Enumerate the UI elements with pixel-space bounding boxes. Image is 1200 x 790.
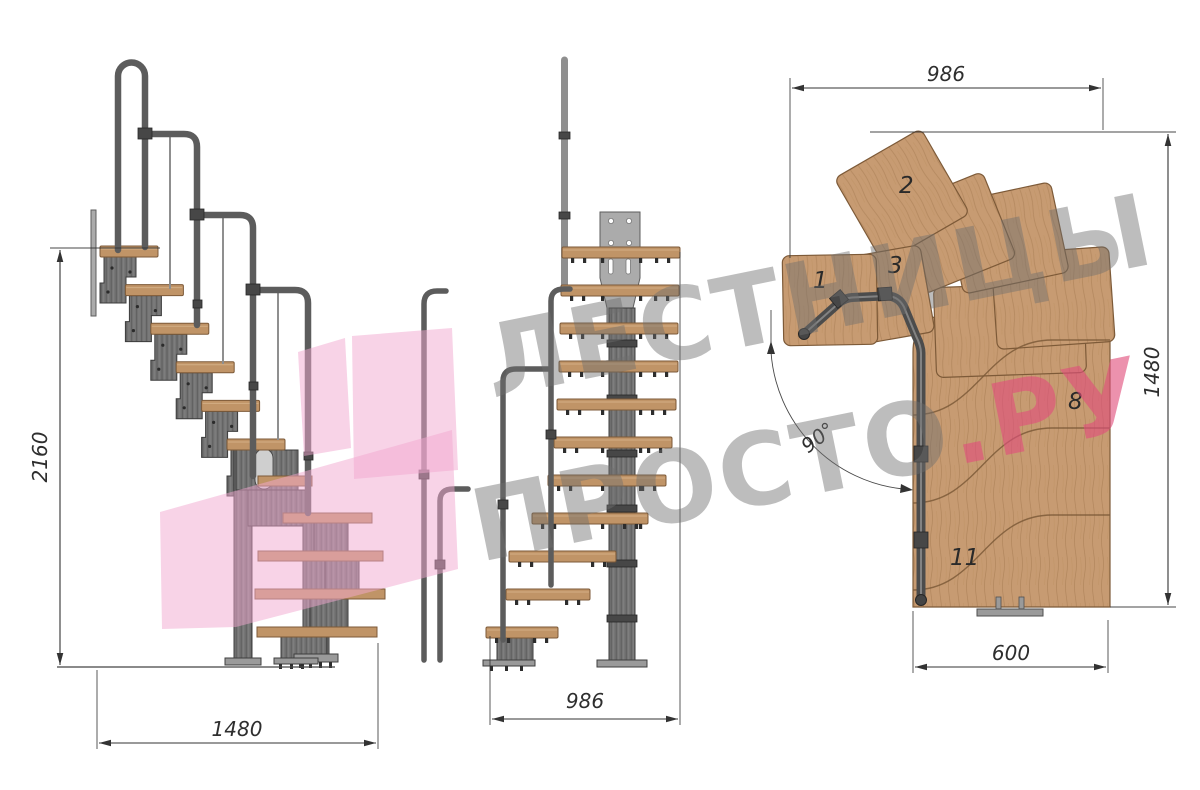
handrail-loop: [118, 63, 145, 251]
step-tread: [176, 362, 234, 373]
column-a-base: [225, 658, 261, 665]
wall-plate-edge: [91, 210, 96, 316]
step-tread: [125, 285, 183, 296]
front-bases: [483, 660, 647, 671]
side-width-dimension-label: 1480: [212, 717, 263, 741]
plan-step-label-2: 2: [899, 173, 914, 199]
staircase-drawing: 2160 1480: [0, 0, 1200, 790]
plan-top-dimension-label: 986: [927, 62, 965, 86]
plan-bottom-dimension-label: 600: [992, 641, 1030, 665]
plan-right-dimension-label: 1480: [1140, 347, 1164, 398]
front-width-dimension-label: 986: [566, 689, 604, 713]
watermark-shape-1: [298, 338, 351, 456]
front-plank: [506, 589, 590, 605]
plan-step-label-11: 11: [950, 545, 979, 571]
drawing-canvas: 2160 1480: [0, 0, 1200, 790]
side-height-dimension-label: 2160: [28, 432, 52, 483]
